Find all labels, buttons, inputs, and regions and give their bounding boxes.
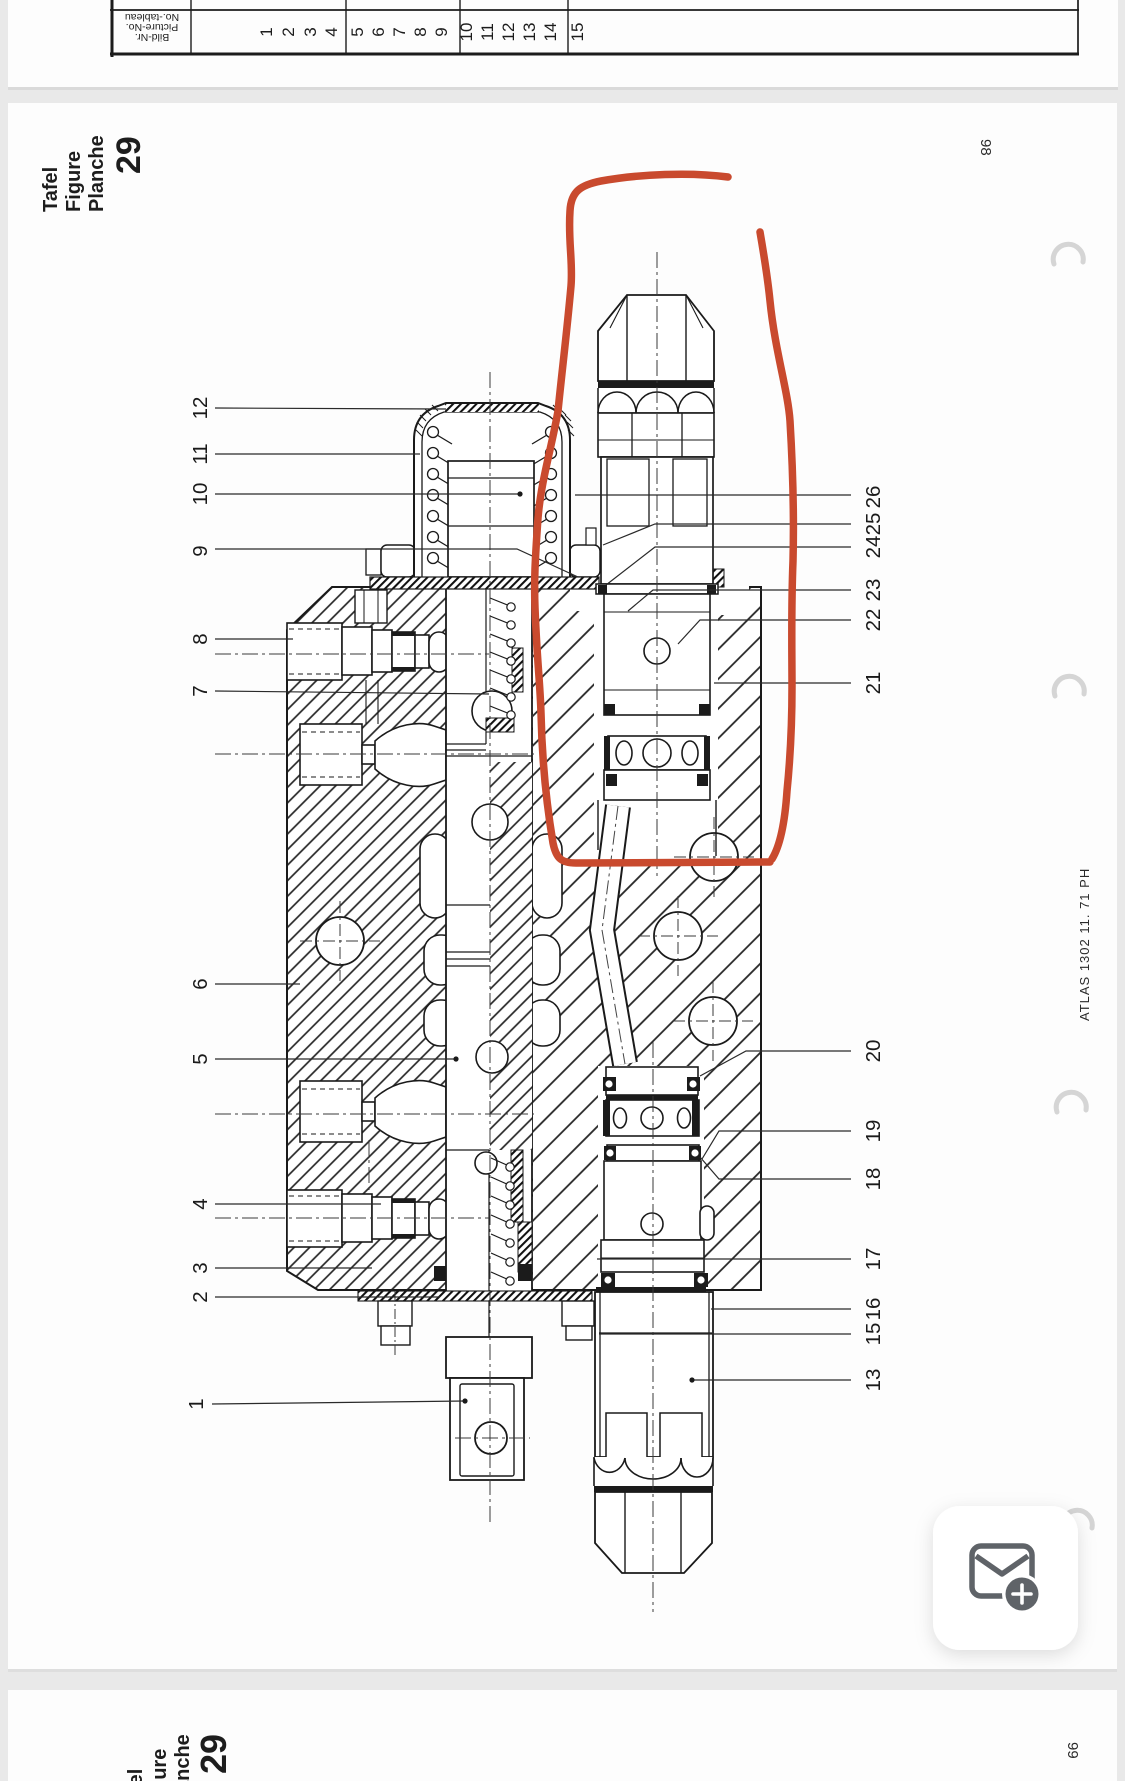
svg-text:8: 8 xyxy=(411,27,430,36)
svg-text:21: 21 xyxy=(862,672,885,695)
svg-text:19: 19 xyxy=(862,1120,885,1143)
svg-text:anche: anche xyxy=(172,1734,194,1781)
svg-text:9: 9 xyxy=(432,27,451,36)
svg-text:4: 4 xyxy=(322,27,341,36)
svg-text:8: 8 xyxy=(189,633,212,644)
svg-text:15: 15 xyxy=(862,1323,885,1346)
svg-text:98: 98 xyxy=(977,139,994,156)
svg-text:Figure: Figure xyxy=(63,151,85,212)
svg-text:Planche: Planche xyxy=(86,135,108,212)
svg-text:3: 3 xyxy=(189,1262,212,1273)
svg-text:6: 6 xyxy=(189,978,212,989)
svg-text:22: 22 xyxy=(862,609,885,632)
svg-text:4: 4 xyxy=(189,1198,212,1209)
svg-text:29: 29 xyxy=(193,1734,234,1774)
svg-text:15: 15 xyxy=(568,23,587,42)
svg-text:9: 9 xyxy=(189,545,212,556)
svg-text:5: 5 xyxy=(189,1053,212,1064)
svg-text:ATLAS 1302 11. 71 PH: ATLAS 1302 11. 71 PH xyxy=(1077,868,1092,1021)
svg-text:12: 12 xyxy=(499,23,518,42)
svg-text:11: 11 xyxy=(478,23,497,41)
svg-text:1: 1 xyxy=(185,1398,208,1409)
svg-text:20: 20 xyxy=(862,1040,885,1063)
svg-text:7: 7 xyxy=(189,685,212,696)
svg-text:12: 12 xyxy=(189,397,212,420)
svg-text:3: 3 xyxy=(301,27,320,36)
svg-text:2: 2 xyxy=(189,1291,212,1302)
svg-text:25: 25 xyxy=(862,513,885,536)
svg-text:gure: gure xyxy=(149,1749,171,1781)
svg-text:2: 2 xyxy=(279,27,298,36)
svg-text:11: 11 xyxy=(189,443,212,464)
svg-text:Tafel: Tafel xyxy=(40,167,62,212)
svg-text:23: 23 xyxy=(862,579,885,602)
svg-text:fel: fel xyxy=(125,1769,147,1781)
svg-text:1: 1 xyxy=(257,27,276,36)
svg-text:14: 14 xyxy=(541,23,560,42)
svg-text:No.-tableau: No.-tableau xyxy=(125,11,179,23)
svg-text:29: 29 xyxy=(110,136,148,174)
svg-text:18: 18 xyxy=(862,1168,885,1191)
svg-text:10: 10 xyxy=(189,483,212,506)
svg-text:17: 17 xyxy=(862,1248,885,1271)
svg-text:99: 99 xyxy=(1064,1742,1081,1759)
svg-text:26: 26 xyxy=(862,486,885,509)
svg-text:7: 7 xyxy=(390,27,409,36)
svg-text:13: 13 xyxy=(520,23,539,42)
svg-text:16: 16 xyxy=(862,1298,885,1321)
svg-text:13: 13 xyxy=(862,1369,885,1392)
svg-text:24: 24 xyxy=(862,536,885,559)
svg-text:5: 5 xyxy=(348,27,367,36)
svg-text:10: 10 xyxy=(457,23,476,42)
svg-text:6: 6 xyxy=(369,27,388,36)
